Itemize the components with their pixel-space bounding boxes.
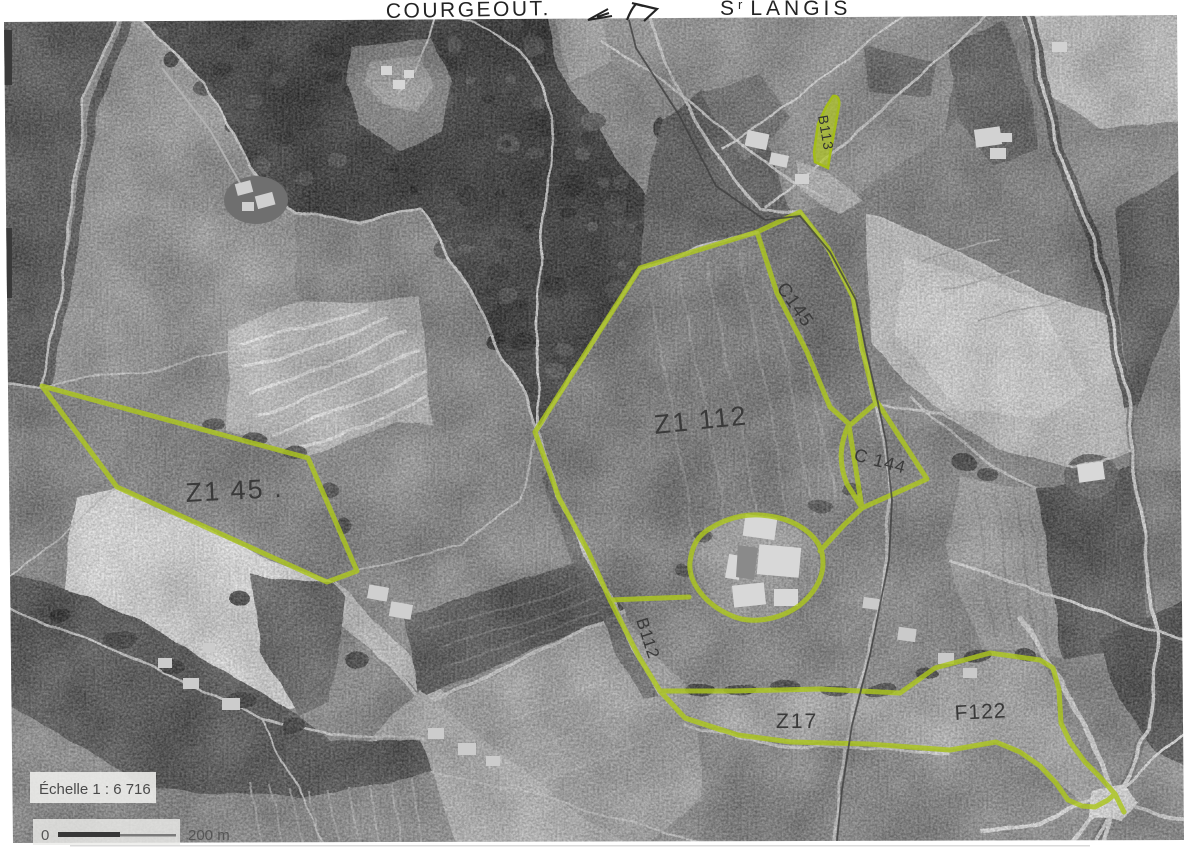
svg-text:F122: F122 bbox=[954, 699, 1007, 725]
svg-text:Z1 45 .: Z1 45 . bbox=[185, 473, 284, 508]
svg-text:Z17: Z17 bbox=[776, 710, 818, 733]
svg-text:Échelle 1 : 6 716: Échelle 1 : 6 716 bbox=[39, 781, 151, 798]
svg-text:0: 0 bbox=[41, 827, 49, 844]
svg-text:200 m: 200 m bbox=[188, 827, 230, 844]
svg-text:COURGEOUT.: COURGEOUT. bbox=[386, 0, 551, 23]
